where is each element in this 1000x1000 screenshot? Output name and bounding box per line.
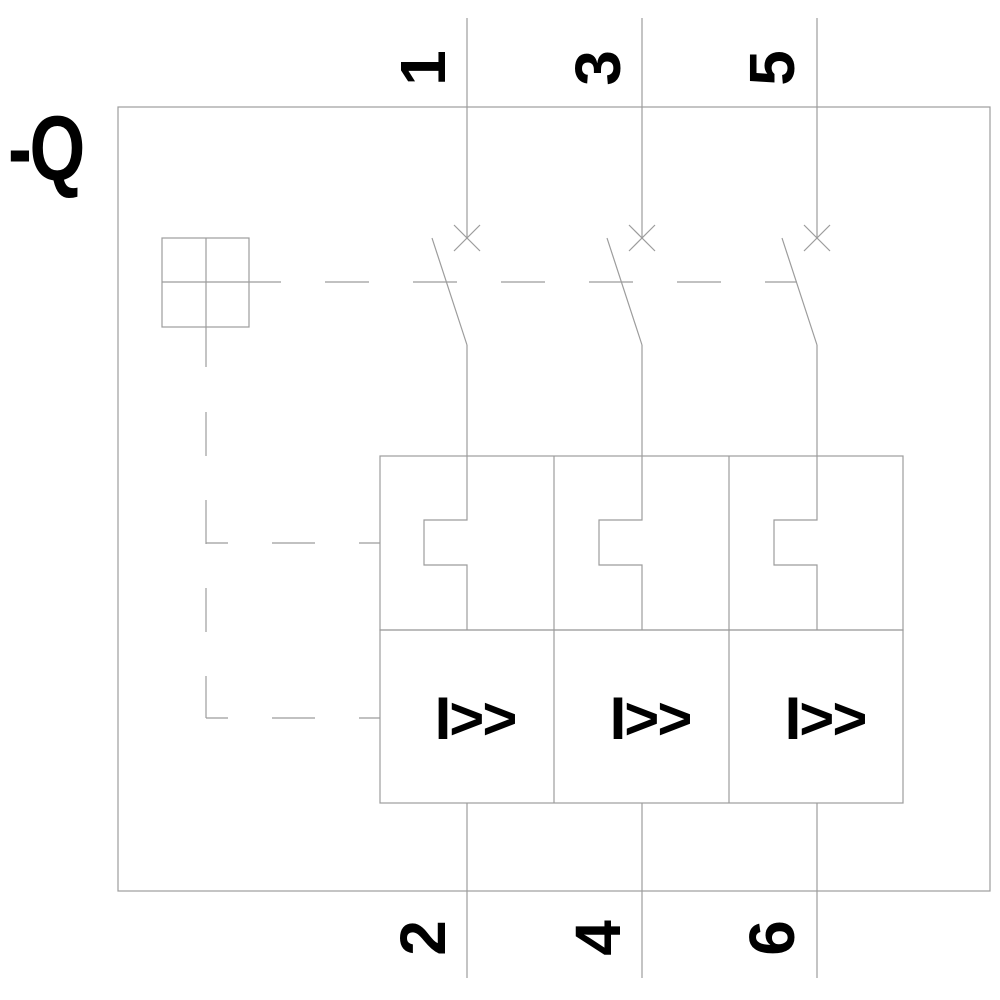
terminal-label-5: 5 — [736, 50, 808, 86]
circuit-breaker-schematic: -Q — [0, 0, 1000, 1000]
pole1-thermal-element — [424, 456, 467, 630]
magnetic-trip-symbol-1: I>> — [435, 685, 516, 752]
pole3-contact-blade — [782, 238, 817, 345]
terminal-label-6: 6 — [736, 920, 808, 956]
terminal-label-3: 3 — [562, 50, 634, 86]
magnetic-trip-symbol-3: I>> — [785, 685, 866, 752]
terminal-label-1: 1 — [387, 50, 459, 86]
pole-2 — [599, 18, 655, 978]
terminal-label-2: 2 — [387, 920, 459, 956]
terminal-labels: 1 3 5 2 4 6 — [387, 50, 808, 956]
mechanical-linkage — [206, 282, 797, 718]
magnetic-trip-symbol-2: I>> — [610, 685, 691, 752]
pole2-contact-blade — [607, 238, 642, 345]
pole-1 — [424, 18, 480, 978]
manual-operator — [162, 238, 281, 367]
pole3-thermal-element — [774, 456, 817, 630]
pole-3 — [774, 18, 830, 978]
pole2-thermal-element — [599, 456, 642, 630]
device-label: -Q — [8, 97, 83, 200]
terminal-label-4: 4 — [562, 920, 634, 956]
pole1-contact-blade — [432, 238, 467, 345]
